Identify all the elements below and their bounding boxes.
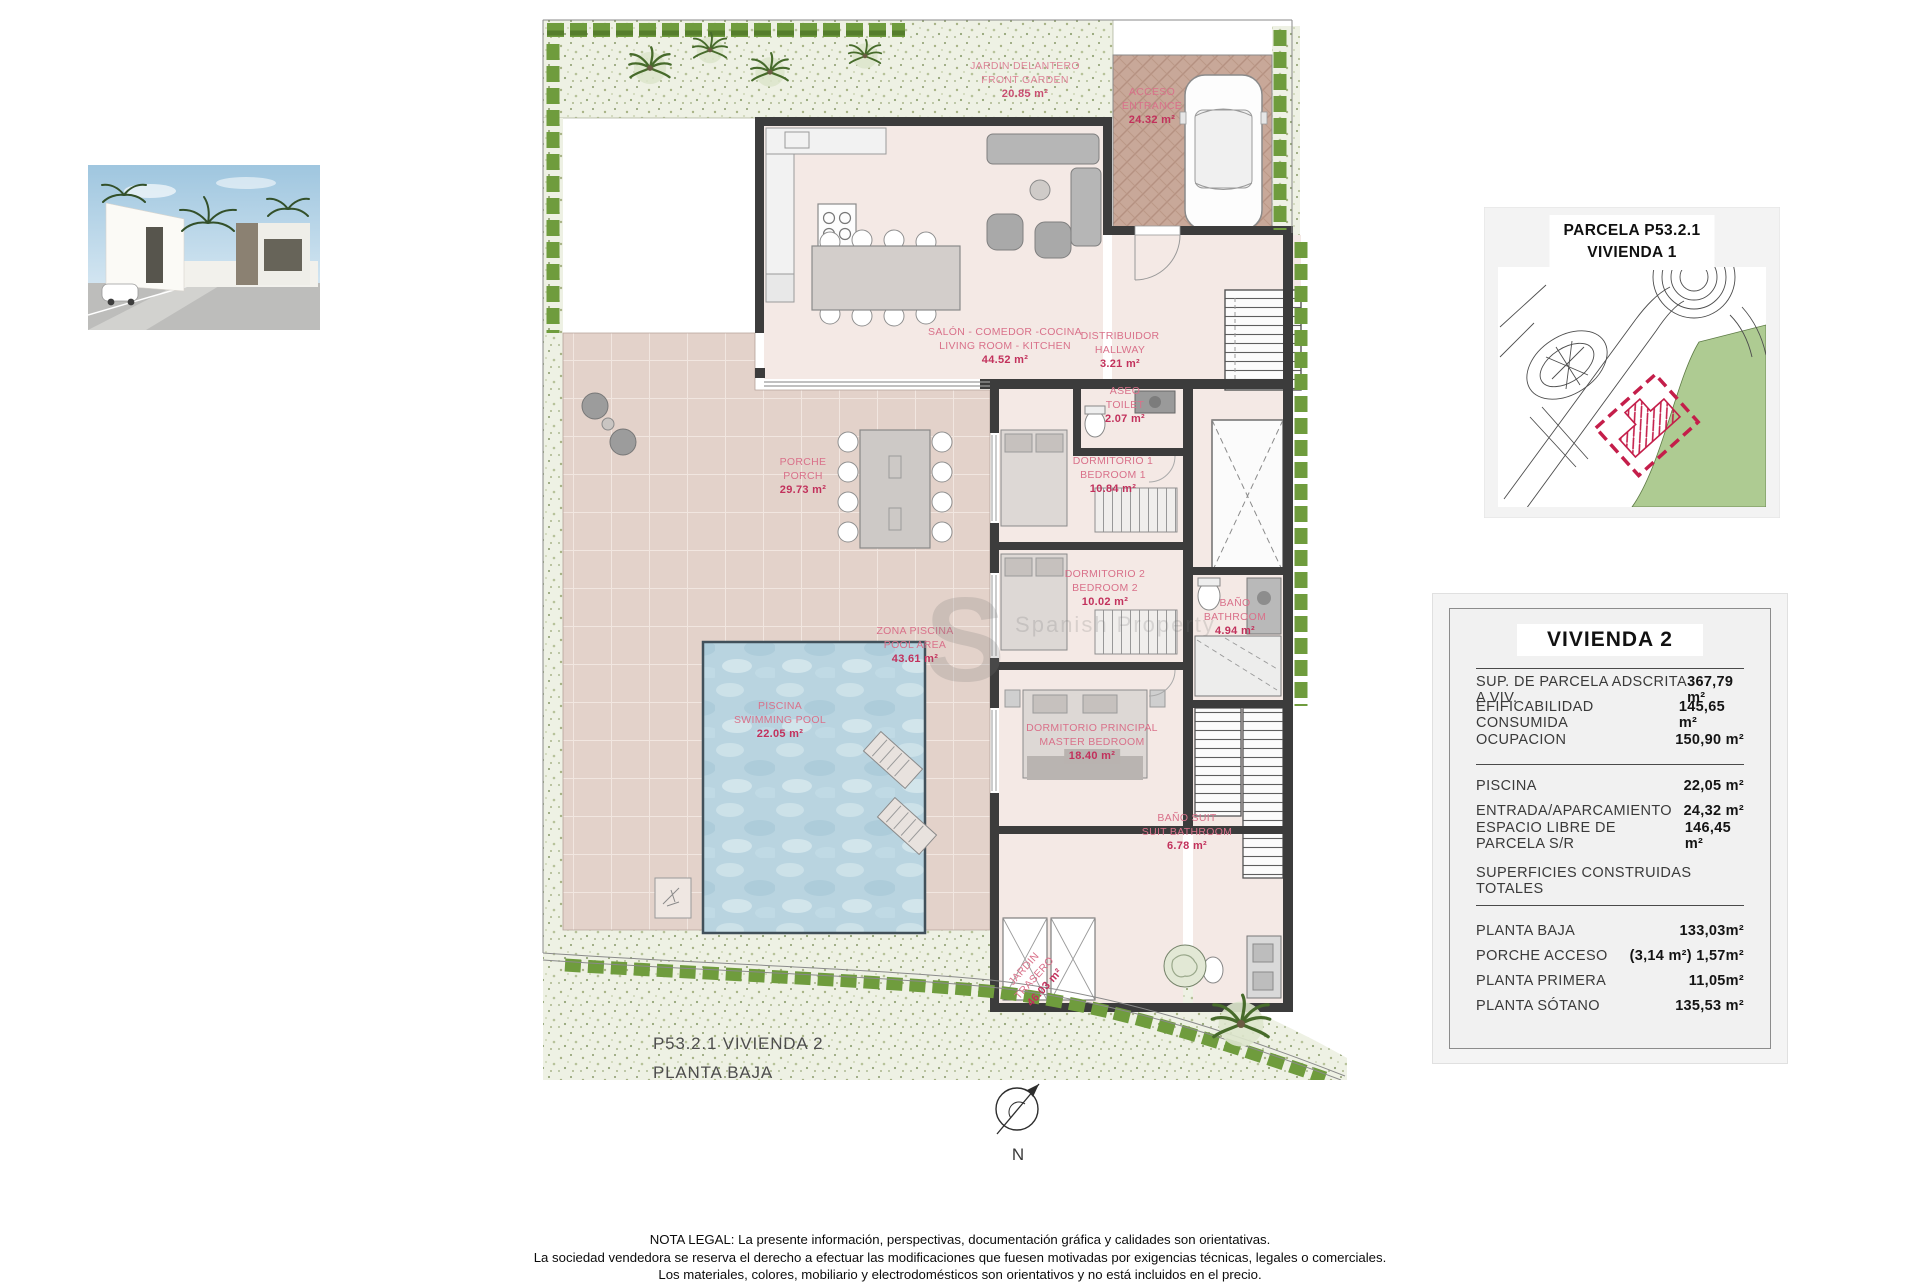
- room-name: BAÑO: [1204, 597, 1266, 611]
- room-label-distribuidor: DISTRIBUIDOR HALLWAY 3.21 m²: [1081, 330, 1160, 372]
- tree-icon: [1164, 945, 1206, 987]
- row-value: 146,45 m²: [1685, 820, 1744, 852]
- room-name: TOILET: [1105, 399, 1145, 413]
- divider: [1476, 764, 1744, 765]
- room-label-salon: SALÓN - COMEDOR -COCINA LIVING ROOM - KI…: [928, 326, 1082, 368]
- room-name: BATHROOM: [1204, 611, 1266, 625]
- compass-icon: [987, 1076, 1049, 1142]
- room-area: 20.85 m²: [970, 87, 1080, 101]
- room-area: 10.02 m²: [1065, 595, 1145, 609]
- built-rows: PLANTA BAJA 133,03m² PORCHE ACCESO (3,14…: [1476, 918, 1744, 1018]
- north-arrow: N: [983, 1076, 1053, 1168]
- room-name: BEDROOM 2: [1065, 582, 1145, 596]
- room-area: 3.21 m²: [1081, 357, 1160, 371]
- room-label-aseo: ASEO TOILET 2.07 m²: [1105, 385, 1145, 427]
- lounge-chair: [610, 429, 636, 455]
- plan-caption: P53.2.1 VIVIENDA 2 PLANTA BAJA: [653, 1030, 823, 1088]
- row-label: PLANTA PRIMERA: [1476, 973, 1606, 989]
- section-header: SUPERFICIES CONSTRUIDAS TOTALES: [1476, 865, 1744, 906]
- car-icon: [1180, 75, 1267, 230]
- room-area: 6.78 m²: [1142, 839, 1232, 853]
- room-name: PORCHE: [780, 456, 827, 470]
- summary-table: VIVIENDA 2 SUP. DE PARCELA ADSCRITA A VI…: [1449, 608, 1771, 1049]
- room-name: JARDIN DELANTERO: [970, 60, 1080, 74]
- row-value: 22,05 m²: [1684, 778, 1744, 794]
- row-value: (3,14 m²) 1,57m²: [1630, 948, 1744, 964]
- row-value: 11,05m²: [1689, 973, 1744, 989]
- room-label-dormitorio-2: DORMITORIO 2 BEDROOM 2 10.02 m²: [1065, 568, 1145, 610]
- room-area: 43.61 m²: [876, 652, 953, 666]
- map-title-line-1: PARCELA P53.2.1: [1564, 220, 1701, 242]
- room-name: ASEO: [1105, 385, 1145, 399]
- room-name: BAÑO SUIT: [1142, 812, 1232, 826]
- room-name: SALÓN - COMEDOR -COCINA: [928, 326, 1082, 340]
- room-name: ZONA PISCINA: [876, 625, 953, 639]
- room-name: LIVING ROOM - KITCHEN: [928, 340, 1082, 354]
- room-name: MASTER BEDROOM: [1026, 736, 1158, 750]
- row-label: EFIFICABILIDAD CONSUMIDA: [1476, 699, 1679, 731]
- page: { "page": { "caption_line1": "P53.2.1 VI…: [0, 0, 1920, 1280]
- row-label: PLANTA SÓTANO: [1476, 998, 1600, 1014]
- legal-note: NOTA LEGAL: La presente información, per…: [0, 1231, 1920, 1284]
- room-label-zona-piscina: ZONA PISCINA POOL AREA 43.61 m²: [876, 625, 953, 667]
- summary-title: VIVIENDA 2: [1517, 624, 1703, 656]
- room-name: PORCH: [780, 470, 827, 484]
- bed-1: [1001, 430, 1067, 526]
- row-value: 133,03m²: [1680, 923, 1744, 939]
- room-name: DISTRIBUIDOR: [1081, 330, 1160, 344]
- room-name: ACCESO: [1122, 86, 1182, 100]
- floor-plan-drawing: [535, 18, 1350, 1080]
- table-row: PISCINA 22,05 m²: [1476, 773, 1744, 798]
- room-name: DORMITORIO 2: [1065, 568, 1145, 582]
- room-area: 22.05 m²: [734, 727, 826, 741]
- room-label-bano: BAÑO BATHROOM 4.94 m²: [1204, 597, 1266, 639]
- map-title-line-2: VIVIENDA 1: [1564, 242, 1701, 264]
- room-name: DORMITORIO PRINCIPAL: [1026, 722, 1158, 736]
- table-row: ESPACIO LIBRE DE PARCELA S/R 146,45 m²: [1476, 823, 1744, 848]
- stairs-down-a: [1195, 708, 1241, 816]
- room-label-dormitorio-principal: DORMITORIO PRINCIPAL MASTER BEDROOM 18.4…: [1026, 722, 1158, 764]
- row-value: 24,32 m²: [1684, 803, 1744, 819]
- room-name: SWIMMING POOL: [734, 714, 826, 728]
- table-row: PLANTA PRIMERA 11,05m²: [1476, 968, 1744, 993]
- caption-line-1: P53.2.1 VIVIENDA 2: [653, 1030, 823, 1059]
- row-value: 145,65 m²: [1679, 699, 1744, 731]
- floor-plan: ACCESO ENTRANCE 24.32 m² JARDIN DELANTER…: [535, 18, 1350, 1080]
- table-row: PLANTA SÓTANO 135,53 m²: [1476, 993, 1744, 1018]
- row-value: 150,90 m²: [1675, 732, 1744, 748]
- table-row: OCUPACION 150,90 m²: [1476, 727, 1744, 752]
- legal-line-1: NOTA LEGAL: La presente información, per…: [0, 1231, 1920, 1249]
- outdoor-shower: [655, 878, 691, 918]
- row-value: 135,53 m²: [1675, 998, 1744, 1014]
- project-photo: [88, 165, 320, 330]
- room-name: POOL AREA: [876, 639, 953, 653]
- row-label: OCUPACION: [1476, 732, 1566, 748]
- stairs-down-b: [1243, 708, 1283, 878]
- exterior-rows: PISCINA 22,05 m² ENTRADA/APARCAMIENTO 24…: [1476, 773, 1744, 848]
- room-label-porche: PORCHE PORCH 29.73 m²: [780, 456, 827, 498]
- swimming-pool: [703, 642, 925, 933]
- table-row: PLANTA BAJA 133,03m²: [1476, 918, 1744, 943]
- summary-panel: VIVIENDA 2 SUP. DE PARCELA ADSCRITA A VI…: [1432, 593, 1788, 1064]
- legal-line-2: La sociedad vendedora se reserva el dere…: [0, 1249, 1920, 1267]
- location-map-panel: PARCELA P53.2.1 VIVIENDA 1: [1484, 207, 1780, 518]
- room-label-acceso: ACCESO ENTRANCE 24.32 m²: [1122, 86, 1182, 128]
- lounge-chair: [582, 393, 608, 419]
- room-area: 2.07 m²: [1105, 412, 1145, 426]
- room-name: HALLWAY: [1081, 344, 1160, 358]
- room-area: 24.32 m²: [1122, 113, 1182, 127]
- room-label-bano-suit: BAÑO SUIT SUIT BATHROOM 6.78 m²: [1142, 812, 1232, 854]
- table-row: PORCHE ACCESO (3,14 m²) 1,57m²: [1476, 943, 1744, 968]
- room-name: FRONT GARDEN: [970, 74, 1080, 88]
- room-name: DORMITORIO 1: [1073, 455, 1153, 469]
- room-label-dormitorio-1: DORMITORIO 1 BEDROOM 1 10.84 m²: [1073, 455, 1153, 497]
- room-name: ENTRANCE: [1122, 100, 1182, 114]
- room-label-front-garden: JARDIN DELANTERO FRONT GARDEN 20.85 m²: [970, 60, 1080, 102]
- room-name: BEDROOM 1: [1073, 469, 1153, 483]
- caption-line-2: PLANTA BAJA: [653, 1059, 823, 1088]
- row-label: PISCINA: [1476, 778, 1537, 794]
- legal-line-3: Los materiales, colores, mobiliario y el…: [0, 1266, 1920, 1284]
- table-row: EFIFICABILIDAD CONSUMIDA 145,65 m²: [1476, 702, 1744, 727]
- row-label: ESPACIO LIBRE DE PARCELA S/R: [1476, 820, 1685, 852]
- room-area: 10.84 m²: [1073, 482, 1153, 496]
- divider: [1476, 668, 1744, 669]
- room-area: 44.52 m²: [928, 353, 1082, 367]
- row-label: PLANTA BAJA: [1476, 923, 1575, 939]
- row-label: PORCHE ACCESO: [1476, 948, 1608, 964]
- bed-2: [1001, 554, 1067, 650]
- room-name: SUIT BATHROOM: [1142, 826, 1232, 840]
- row-label: ENTRADA/APARCAMIENTO: [1476, 803, 1672, 819]
- room-label-piscina: PISCINA SWIMMING POOL 22.05 m²: [734, 700, 826, 742]
- room-area: 29.73 m²: [780, 483, 827, 497]
- map-title: PARCELA P53.2.1 VIVIENDA 1: [1550, 215, 1715, 270]
- north-label: N: [983, 1145, 1053, 1165]
- room-name: PISCINA: [734, 700, 826, 714]
- parcel-rows: SUP. DE PARCELA ADSCRITA A VIV. 367,79 m…: [1476, 677, 1744, 752]
- photo-render: [88, 165, 320, 330]
- room-area: 4.94 m²: [1204, 624, 1266, 638]
- room-area: 18.40 m²: [1026, 749, 1158, 763]
